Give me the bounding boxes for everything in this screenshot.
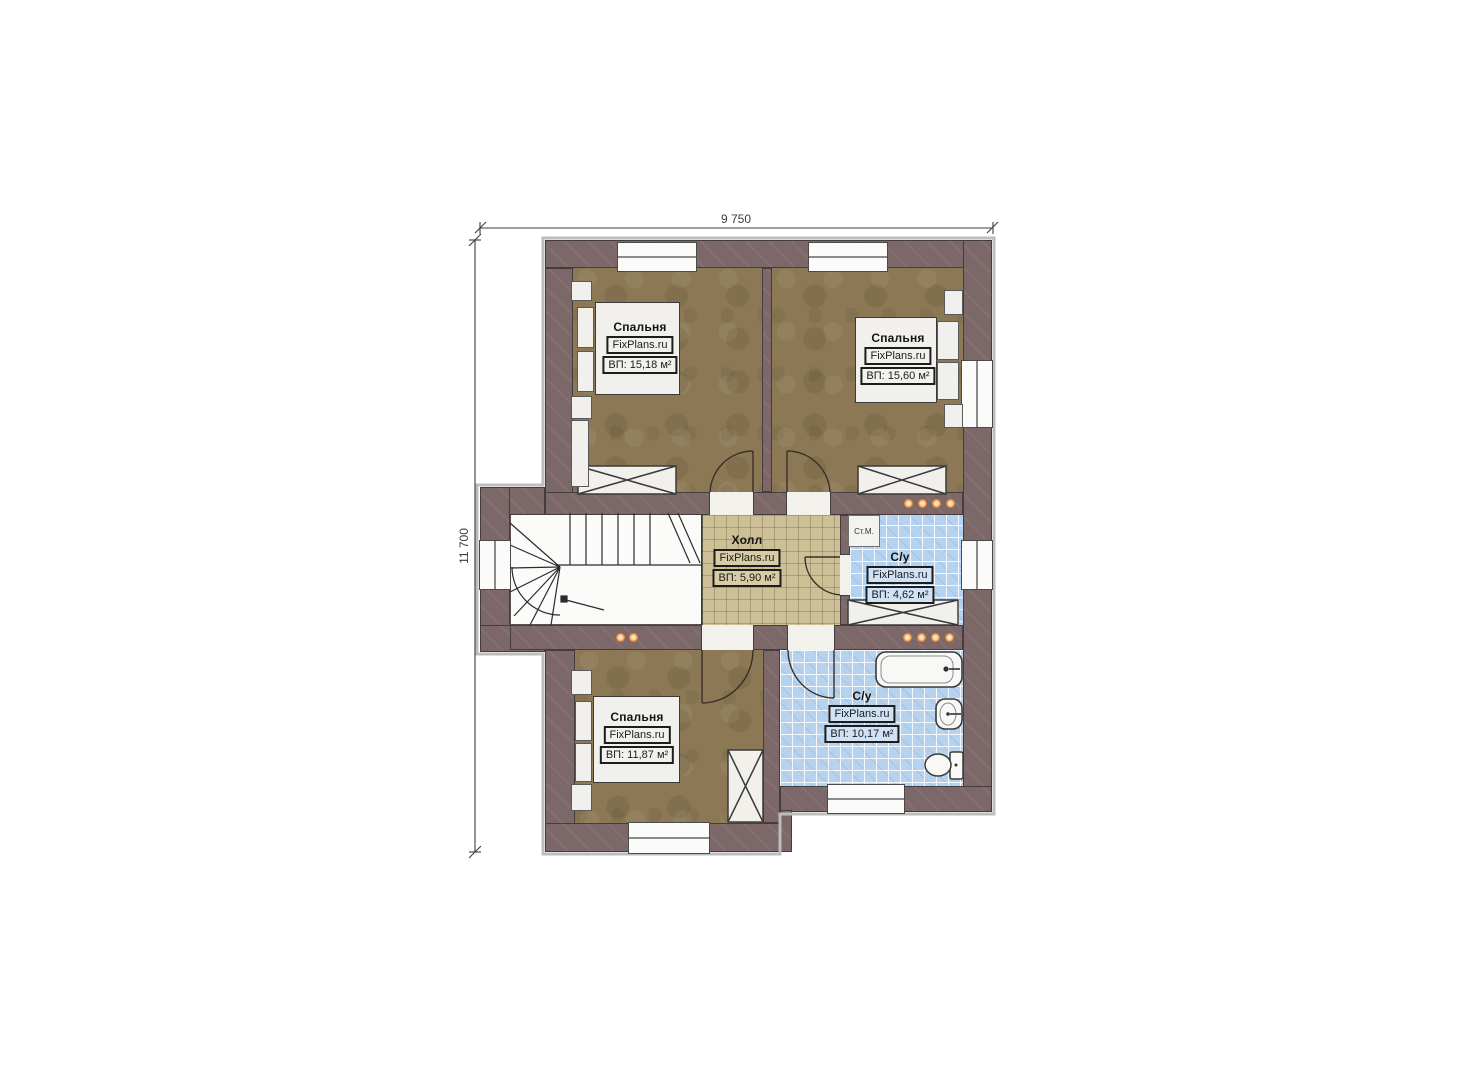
dimension-height: 11 700 bbox=[457, 528, 471, 564]
wall-corridor-top-1 bbox=[545, 492, 710, 515]
room-area: ВП: 4,62 м² bbox=[865, 586, 934, 604]
window-right-bedroom bbox=[961, 360, 993, 428]
room-area: ВП: 15,60 м² bbox=[860, 367, 935, 385]
bedroom-bottom-label: Спальня FixPlans.ru ВП: 11,87 м² bbox=[600, 710, 674, 764]
nightstand bbox=[571, 670, 592, 695]
pillow bbox=[577, 307, 594, 348]
spotlight bbox=[903, 633, 912, 642]
bathroom-large-label: С/у FixPlans.ru ВП: 10,17 м² bbox=[824, 689, 899, 743]
dresser bbox=[571, 420, 589, 487]
wall-left-upper bbox=[545, 268, 573, 515]
spotlight bbox=[917, 633, 926, 642]
door-opening-bathroom-large bbox=[788, 625, 834, 650]
wall-step bbox=[780, 810, 792, 852]
washing-machine-label: Ст.М. bbox=[854, 527, 874, 536]
brand-watermark: FixPlans.ru bbox=[864, 347, 931, 365]
room-area: ВП: 5,90 м² bbox=[712, 569, 781, 587]
wall-corridor-bottom-1 bbox=[510, 625, 702, 650]
spotlight bbox=[945, 633, 954, 642]
bedroom-top-right-label: Спальня FixPlans.ru ВП: 15,60 м² bbox=[860, 331, 935, 385]
room-area: ВП: 15,18 м² bbox=[602, 356, 677, 374]
window-bottom-bedroom bbox=[628, 822, 710, 854]
pillow bbox=[577, 351, 594, 392]
pillow bbox=[937, 362, 959, 400]
pillow bbox=[937, 321, 959, 360]
spotlight bbox=[946, 499, 955, 508]
wall-bedroom-party bbox=[762, 268, 772, 492]
nightstand bbox=[571, 396, 592, 419]
wall-bedroom-bath bbox=[763, 650, 780, 823]
spotlight bbox=[932, 499, 941, 508]
wall-corridor-top-3 bbox=[830, 492, 963, 515]
wall-right-exterior bbox=[963, 240, 992, 812]
door-opening-bathroom-small bbox=[840, 555, 850, 595]
room-area: ВП: 10,17 м² bbox=[824, 725, 899, 743]
pillow bbox=[575, 701, 592, 741]
window-right-bathroom bbox=[961, 540, 993, 590]
room-name: Холл bbox=[732, 533, 763, 547]
wall-corridor-bottom-2 bbox=[753, 625, 788, 650]
door-opening-bedroom-bottom bbox=[702, 625, 753, 650]
spotlight bbox=[904, 499, 913, 508]
door-opening-bedroom-top-left bbox=[710, 492, 753, 515]
spotlight bbox=[616, 633, 625, 642]
pillow bbox=[575, 743, 592, 782]
room-name: Спальня bbox=[610, 710, 663, 724]
wall-corridor-bottom-3 bbox=[834, 625, 963, 650]
room-area: ВП: 11,87 м² bbox=[600, 746, 674, 764]
window-left-staircase bbox=[479, 540, 511, 590]
brand-watermark: FixPlans.ru bbox=[713, 549, 780, 567]
nightstand bbox=[571, 281, 592, 301]
bathroom-small-label: С/у FixPlans.ru ВП: 4,62 м² bbox=[865, 550, 934, 604]
hall-label: Холл FixPlans.ru ВП: 5,90 м² bbox=[712, 533, 781, 587]
dimension-width: 9 750 bbox=[721, 212, 751, 226]
door-opening-bedroom-top-right bbox=[787, 492, 830, 515]
washing-machine: Ст.М. bbox=[848, 515, 880, 547]
window-top-right bbox=[808, 242, 888, 272]
nightstand bbox=[944, 404, 963, 428]
room-name: Спальня bbox=[871, 331, 924, 345]
spotlight bbox=[918, 499, 927, 508]
wall-hall-bath-lower bbox=[840, 595, 850, 625]
spotlight bbox=[931, 633, 940, 642]
brand-watermark: FixPlans.ru bbox=[866, 566, 933, 584]
spotlight bbox=[629, 633, 638, 642]
nightstand bbox=[944, 290, 963, 315]
brand-watermark: FixPlans.ru bbox=[828, 705, 895, 723]
room-name: Спальня bbox=[613, 320, 666, 334]
brand-watermark: FixPlans.ru bbox=[603, 726, 670, 744]
floor-plan: Ст.М. bbox=[0, 0, 1473, 1080]
brand-watermark: FixPlans.ru bbox=[606, 336, 673, 354]
window-bottom-bathroom bbox=[827, 784, 905, 814]
nightstand bbox=[571, 784, 592, 811]
staircase-floor bbox=[510, 513, 702, 625]
bedroom-top-left-label: Спальня FixPlans.ru ВП: 15,18 м² bbox=[602, 320, 677, 374]
room-name: С/у bbox=[890, 550, 909, 564]
wall-top-exterior bbox=[545, 240, 992, 268]
window-top-left bbox=[617, 242, 697, 272]
room-name: С/у bbox=[852, 689, 871, 703]
wall-corridor-top-2 bbox=[753, 492, 787, 515]
